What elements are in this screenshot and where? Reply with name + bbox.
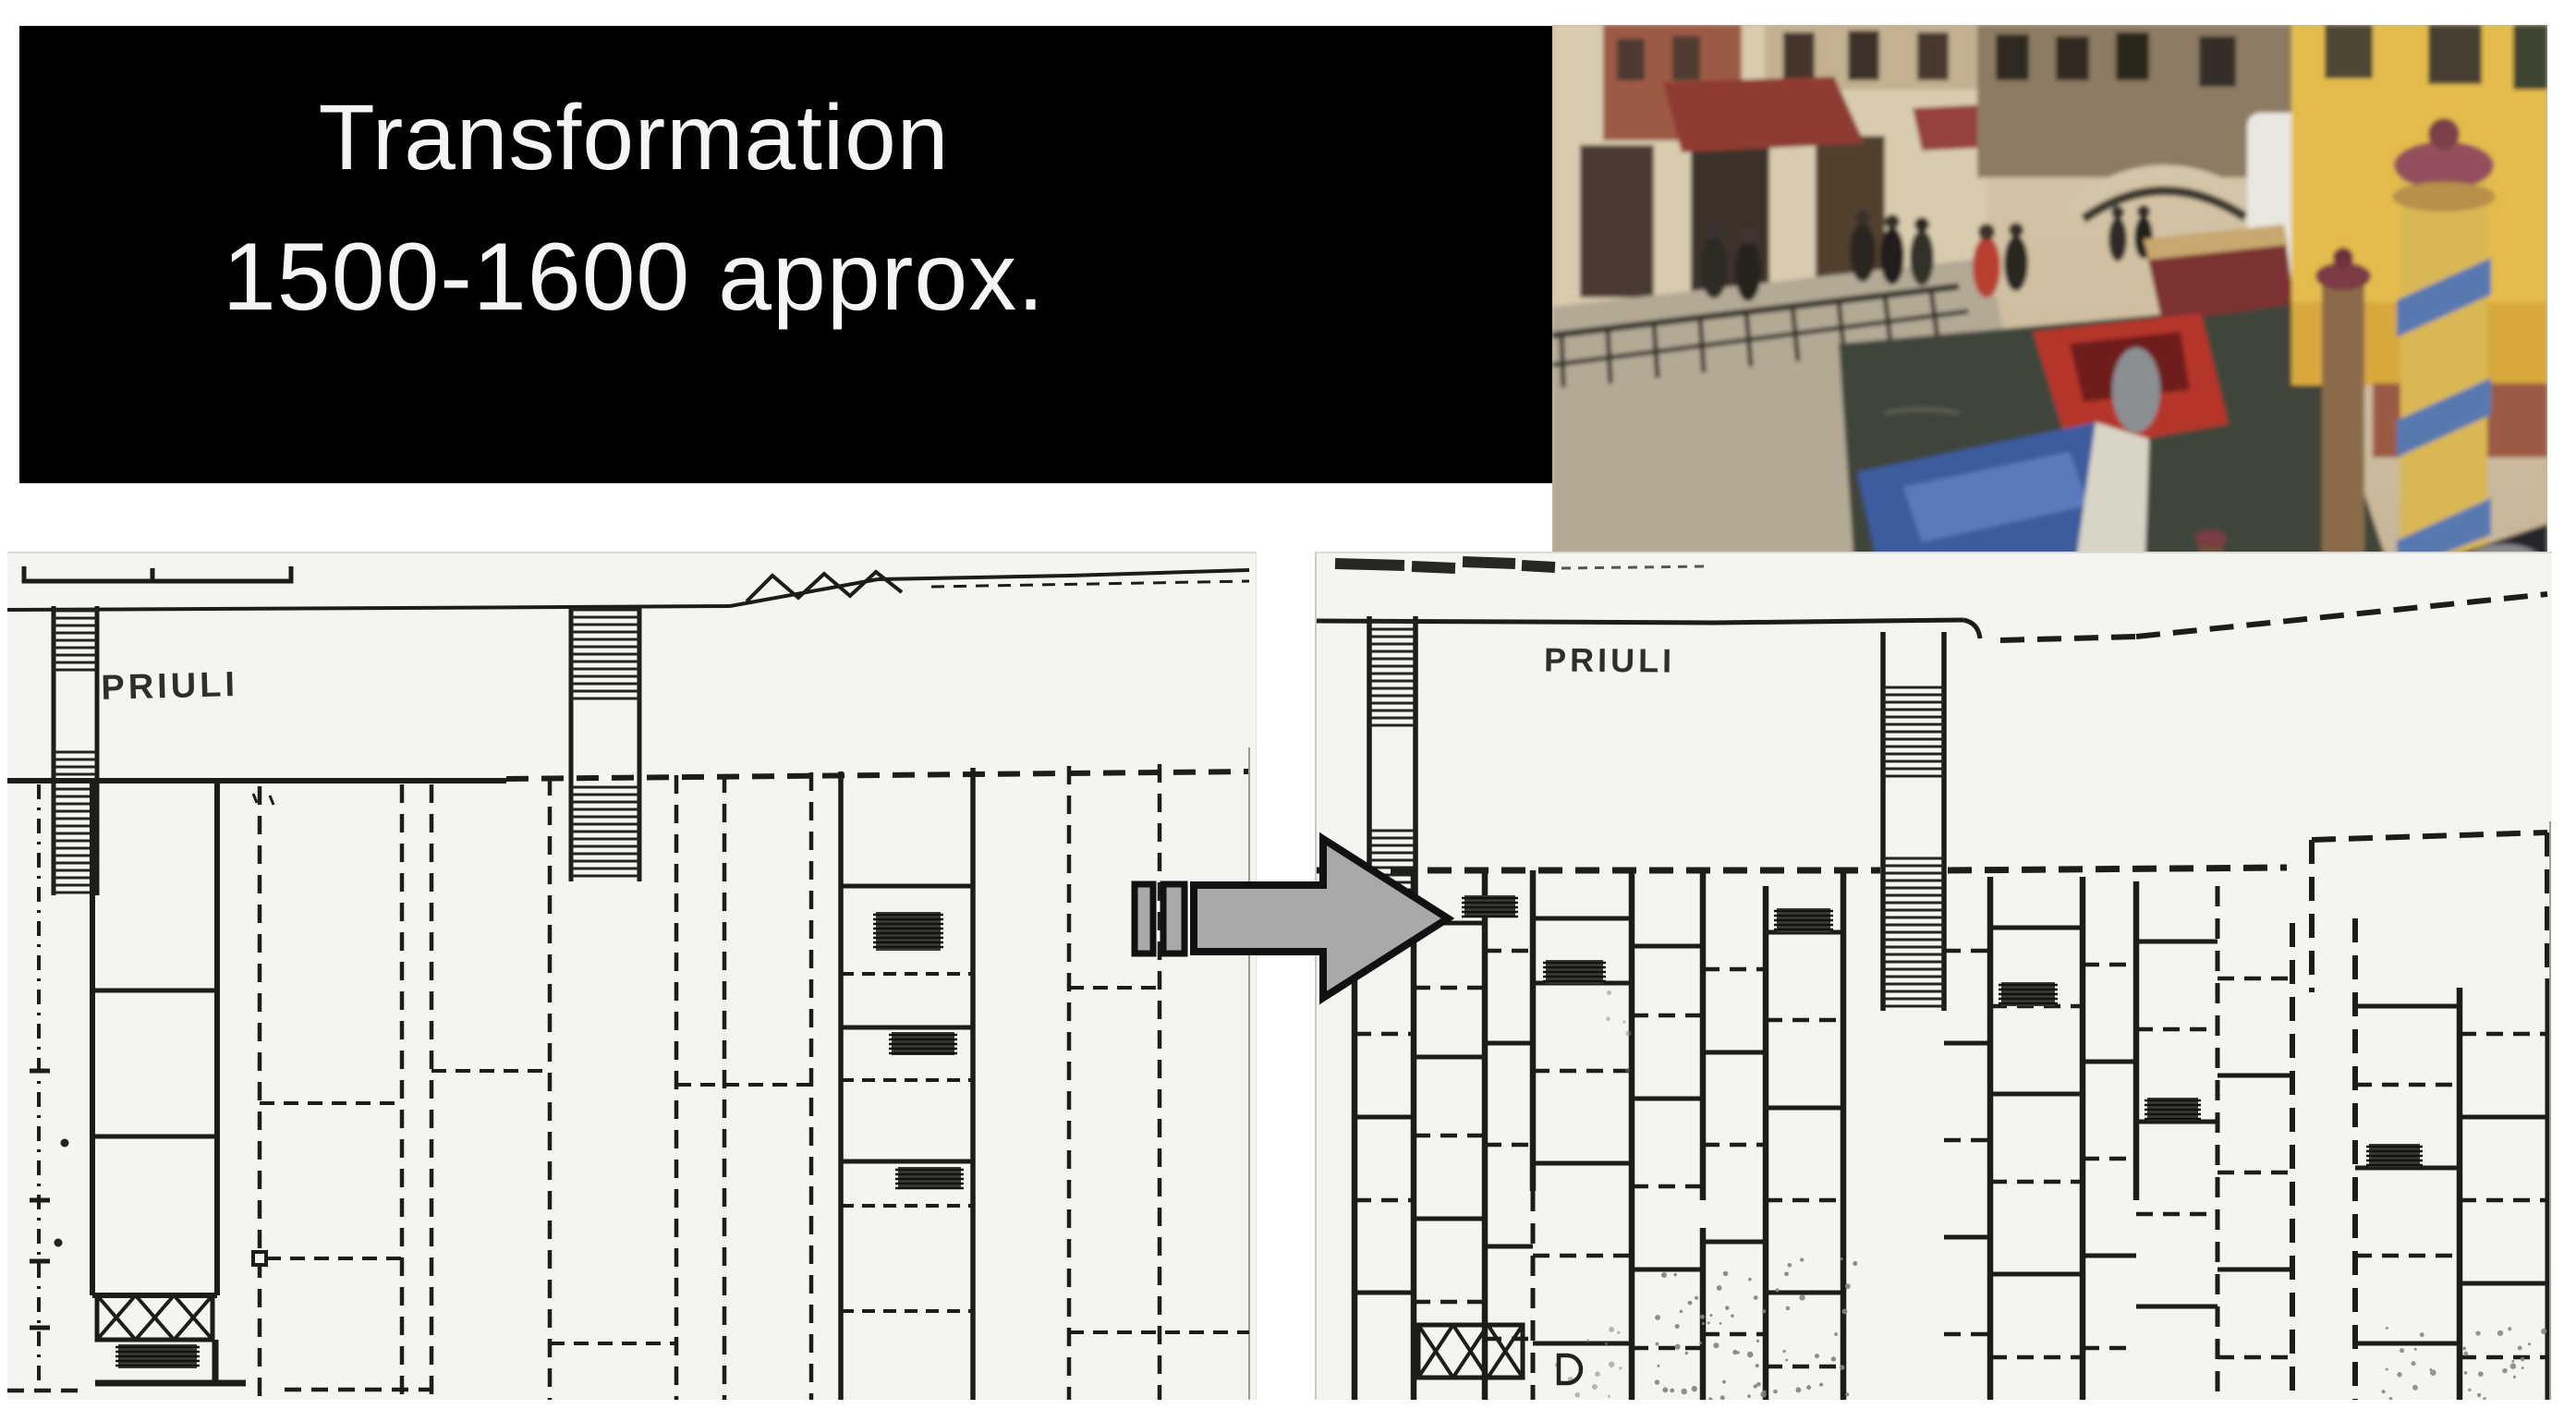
map-before-drawing: PRIULI	[7, 553, 1256, 1400]
red-awning	[1663, 77, 1865, 152]
map-before: PRIULI	[7, 552, 1257, 1400]
slide-title-line2: 1500-1600 approx.	[19, 223, 1248, 333]
boat-motor	[2112, 347, 2160, 432]
shop-doorway	[1580, 145, 1654, 298]
map-after: PRIULI	[1315, 552, 2552, 1400]
map-label: PRIULI	[101, 665, 239, 708]
transform-arrow-icon	[1129, 830, 1454, 1007]
venice-photo	[1552, 25, 2547, 607]
arrow-bar-1	[1135, 884, 1153, 954]
map-label: PRIULI	[1544, 640, 1675, 679]
venice-photo-art	[1552, 25, 2547, 607]
arrow-body	[1194, 839, 1448, 998]
arrow-bar-2	[1163, 884, 1185, 954]
title-banner: Transformation 1500-1600 approx.	[19, 26, 1552, 483]
striped-pole	[2392, 118, 2496, 607]
slide-title-line1: Transformation	[19, 85, 1248, 191]
shop-doorway	[1816, 136, 1885, 293]
map-after-drawing: PRIULI	[1317, 553, 2552, 1400]
slide-canvas: Transformation 1500-1600 approx.	[0, 0, 2576, 1409]
